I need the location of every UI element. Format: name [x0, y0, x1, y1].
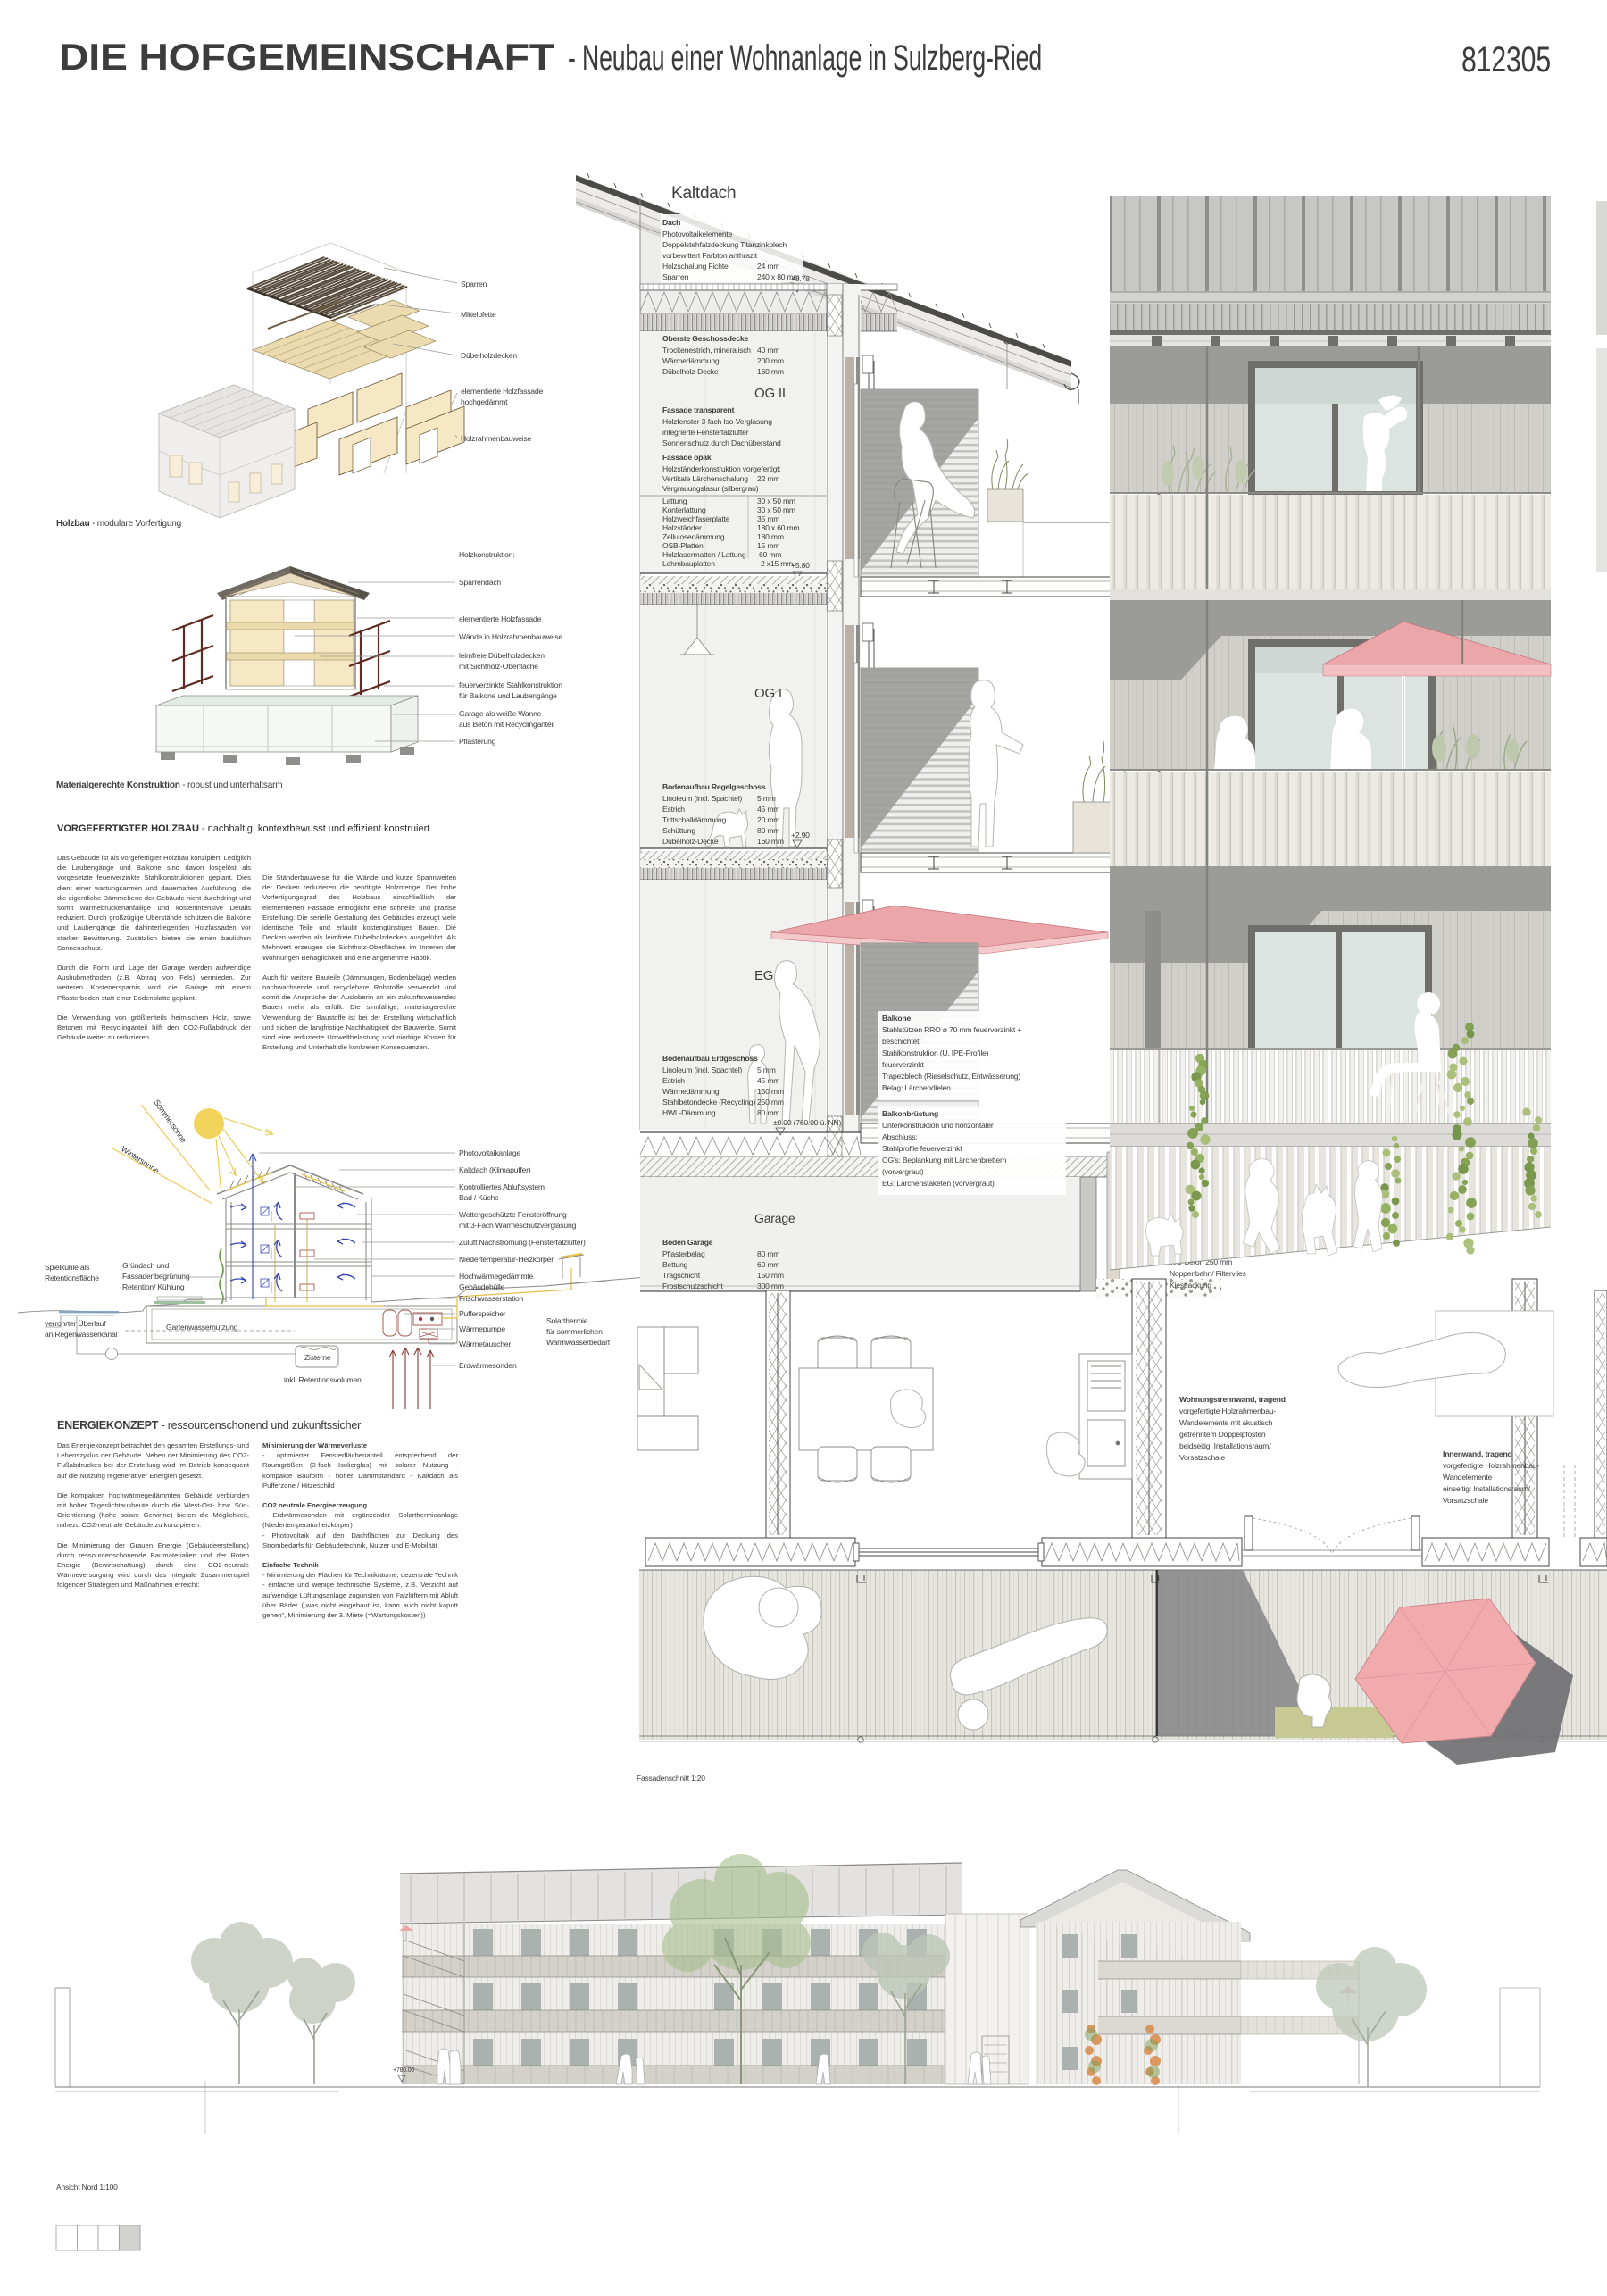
svg-text:Materialgerechte Konstruktion: Materialgerechte Konstruktion - robust u…: [56, 781, 282, 790]
svg-text:ENERGIEKONZEPT - ressourcensch: ENERGIEKONZEPT - ressourcenschonend und …: [57, 1419, 361, 1432]
svg-text:Trittschalldämmung: Trittschalldämmung: [662, 815, 726, 824]
svg-text:Retention/ Kühlung: Retention/ Kühlung: [122, 1282, 185, 1291]
svg-text:beidseitig: Installationsraum/: beidseitig: Installationsraum/: [1179, 1441, 1271, 1450]
svg-text:Schüttung: Schüttung: [662, 826, 695, 835]
svg-text:Pflasterung: Pflasterung: [459, 737, 496, 746]
svg-text:OG I: OG I: [754, 686, 782, 701]
svg-text:aus Beton mit Recyclinganteil: aus Beton mit Recyclinganteil: [459, 720, 554, 729]
svg-text:elementierte Holzfassade: elementierte Holzfassade: [461, 387, 544, 396]
svg-text:Zuluft Nachströmung (Fensterfa: Zuluft Nachströmung (Fensterfalzlüfter): [459, 1238, 586, 1247]
svg-text:Holzständer: Holzständer: [662, 523, 702, 532]
svg-text:Pflasterbelag: Pflasterbelag: [662, 1249, 705, 1258]
svg-text:45 mm: 45 mm: [757, 805, 779, 814]
svg-text:±0.00 (760.00 ü. NN): ±0.00 (760.00 ü. NN): [773, 1118, 842, 1127]
svg-text:150 mm: 150 mm: [757, 1087, 784, 1096]
svg-text:2 x15 mm: 2 x15 mm: [761, 559, 793, 568]
svg-text:160 mm: 160 mm: [757, 837, 784, 846]
svg-text:Wettergeschützte Fensteröffnun: Wettergeschützte Fensteröffnung: [459, 1210, 567, 1219]
svg-text:Oberste Geschossdecke: Oberste Geschossdecke: [662, 334, 749, 343]
svg-text:Warmwasserbedarf: Warmwasserbedarf: [546, 1338, 611, 1347]
svg-text:Bodenaufbau Regelgeschoss: Bodenaufbau Regelgeschoss: [662, 782, 766, 791]
svg-text:Vergrauungslasur (silbergrau): Vergrauungslasur (silbergrau): [662, 484, 759, 493]
svg-text:Kiespackung: Kiespackung: [1170, 1281, 1211, 1290]
svg-text:Gebäudehülle: Gebäudehülle: [459, 1282, 505, 1291]
svg-text:Gartenwassernutzung: Gartenwassernutzung: [166, 1323, 238, 1332]
svg-text:OG II: OG II: [754, 386, 786, 401]
svg-text:Niedertemperatur-Heizkörper: Niedertemperatur-Heizkörper: [459, 1255, 554, 1264]
svg-text:Fassade opak: Fassade opak: [662, 453, 712, 462]
svg-text:Holzfasermatten / Lattung: Holzfasermatten / Lattung: [662, 550, 746, 559]
svg-text:Holzbau - modulare Vorfertigun: Holzbau - modulare Vorfertigung: [56, 519, 181, 529]
svg-text:Holzrahmenbauweise: Holzrahmenbauweise: [461, 434, 531, 443]
svg-text:Fassadenbegrünung: Fassadenbegrünung: [122, 1272, 190, 1281]
svg-text:Kaltdach (Klimapuffer): Kaltdach (Klimapuffer): [459, 1165, 531, 1174]
svg-text:DIE HOFGEMEINSCHAFT: DIE HOFGEMEINSCHAFT: [59, 36, 555, 78]
svg-text:elementierte Holzfassade: elementierte Holzfassade: [459, 614, 542, 623]
svg-text:45 mm: 45 mm: [757, 1076, 779, 1085]
svg-text:Wärmedämmung: Wärmedämmung: [662, 356, 720, 365]
svg-text:Bad / Küche: Bad / Küche: [459, 1193, 499, 1202]
svg-text:30 x 50 mm: 30 x 50 mm: [757, 505, 795, 514]
svg-text:Tragschicht: Tragschicht: [662, 1271, 701, 1280]
svg-text:Stahlprofile feuerverzinkt: Stahlprofile feuerverzinkt: [882, 1144, 962, 1153]
svg-text:Balkone: Balkone: [882, 1014, 911, 1023]
svg-text:Wohnungstrennwand, tragend: Wohnungstrennwand, tragend: [1179, 1395, 1286, 1404]
svg-text:24 mm: 24 mm: [757, 262, 779, 271]
svg-text:Wandelemente: Wandelemente: [1443, 1473, 1493, 1482]
svg-text:mit 3-Fach Wärmeschutzverglasu: mit 3-Fach Wärmeschutzverglasung: [459, 1221, 577, 1230]
svg-text:inkl. Retentionsvolumen: inkl. Retentionsvolumen: [284, 1375, 362, 1384]
svg-text:150 mm: 150 mm: [757, 1271, 784, 1280]
svg-text:80 mm: 80 mm: [757, 1249, 779, 1258]
svg-text:OG's: Beplankung mit Lärchenbr: OG's: Beplankung mit Lärchenbrettern: [882, 1156, 1007, 1165]
svg-text:180 x 60 mm: 180 x 60 mm: [757, 523, 800, 532]
svg-text:60 mm: 60 mm: [757, 1260, 779, 1269]
svg-text:leimfreie Dübelholzdecken: leimfreie Dübelholzdecken: [459, 651, 545, 660]
svg-text:5 mm: 5 mm: [757, 1065, 776, 1074]
svg-text:feuerverzinkt: feuerverzinkt: [882, 1060, 924, 1069]
svg-text:Erdwärmesonden: Erdwärmesonden: [459, 1361, 517, 1370]
svg-text:80 mm: 80 mm: [757, 826, 779, 835]
svg-text:für Balkone und Laubengänge: für Balkone und Laubengänge: [459, 691, 557, 700]
svg-text:22 mm: 22 mm: [757, 474, 779, 483]
svg-text:Fassade transparent: Fassade transparent: [662, 405, 735, 414]
svg-text:Estrich: Estrich: [662, 1076, 685, 1085]
svg-text:integrierte Fensterfalzlüfter: integrierte Fensterfalzlüfter: [662, 428, 749, 437]
svg-text:Wärmepumpe: Wärmepumpe: [459, 1324, 505, 1333]
svg-text:Zellulosedämmung: Zellulosedämmung: [662, 532, 725, 541]
svg-text:Gründach und: Gründach und: [122, 1261, 169, 1270]
svg-text:Unterkonstruktion und horizont: Unterkonstruktion und horizontaler: [882, 1121, 994, 1130]
svg-text:- Neubau einer Wohnanlage in S: - Neubau einer Wohnanlage in Sulzberg-Ri…: [568, 38, 1042, 78]
svg-text:Stahlstützen RRO ø 70 mm feuer: Stahlstützen RRO ø 70 mm feuerverzinkt +: [882, 1025, 1021, 1034]
svg-text:Stahlbetondecke (Recycling): Stahlbetondecke (Recycling): [662, 1098, 755, 1106]
svg-text:Dübelholz-Decke: Dübelholz-Decke: [662, 837, 719, 846]
svg-text:(vorvergraut): (vorvergraut): [882, 1167, 924, 1176]
svg-text:Holzkonstruktion:: Holzkonstruktion:: [459, 550, 515, 559]
svg-text:Pufferspeicher: Pufferspeicher: [459, 1309, 506, 1318]
svg-text:812305: 812305: [1461, 40, 1551, 79]
svg-text:40 mm: 40 mm: [757, 346, 779, 355]
svg-text:EG: EG: [754, 968, 773, 983]
svg-text:Holzfenster 3-fach Iso-Verglas: Holzfenster 3-fach Iso-Verglasung: [662, 417, 772, 426]
svg-text:beschichtet: beschichtet: [882, 1037, 920, 1046]
svg-text:feuerverzinkte Stahlkonstrukti: feuerverzinkte Stahlkonstruktion: [459, 680, 562, 689]
svg-text:Holzschalung Fichte: Holzschalung Fichte: [662, 262, 729, 271]
svg-text:30 x 50 mm: 30 x 50 mm: [757, 497, 795, 505]
svg-text:Wände in Holzrahmenbauweise: Wände in Holzrahmenbauweise: [459, 632, 562, 641]
svg-text:Lehmbauplatten: Lehmbauplatten: [662, 559, 715, 568]
svg-text:Photovoltaikelemente: Photovoltaikelemente: [662, 230, 733, 238]
svg-text:60 mm: 60 mm: [759, 550, 781, 559]
svg-text:Holzständerkonstruktion vorgef: Holzständerkonstruktion vorgefertigt:: [662, 464, 781, 473]
svg-text:15 mm: 15 mm: [757, 541, 779, 550]
svg-text:20 mm: 20 mm: [757, 815, 779, 824]
svg-text:200 mm: 200 mm: [757, 356, 784, 365]
svg-text:Wärmetauscher: Wärmetauscher: [459, 1340, 511, 1348]
svg-text:Kaltdach: Kaltdach: [671, 184, 736, 203]
svg-text:an Regenwasserkanal: an Regenwasserkanal: [45, 1330, 118, 1339]
svg-text:Doppelstehfalzdeckung Titanzin: Doppelstehfalzdeckung Titanzinkblech: [662, 240, 787, 249]
svg-text:einseitig: Installationsraum/: einseitig: Installationsraum/: [1443, 1484, 1531, 1493]
svg-text:Garage: Garage: [754, 1211, 795, 1225]
svg-text:Dach: Dach: [662, 218, 680, 227]
svg-text:300 mm: 300 mm: [757, 1282, 784, 1290]
svg-text:Wärmedämmung: Wärmedämmung: [662, 1087, 720, 1096]
svg-text:Linoleum (incl. Spachtel): Linoleum (incl. Spachtel): [662, 794, 742, 803]
svg-text:Dübelholzdecken: Dübelholzdecken: [461, 351, 517, 360]
svg-text:Estrich: Estrich: [662, 805, 685, 814]
svg-text:Lattung: Lattung: [662, 497, 687, 505]
svg-text:Belag: Lärchendielen: Belag: Lärchendielen: [882, 1083, 951, 1092]
svg-text:Photovoltaikanlage: Photovoltaikanlage: [459, 1148, 520, 1157]
svg-text:Garage als weiße Wanne: Garage als weiße Wanne: [459, 709, 542, 718]
svg-text:Sparren: Sparren: [662, 272, 689, 281]
svg-text:Mittelpfette: Mittelpfette: [461, 310, 496, 319]
svg-text:für sommerlichen: für sommerlichen: [546, 1327, 603, 1336]
svg-text:Fassadenschnitt 1:20: Fassadenschnitt 1:20: [637, 1774, 705, 1783]
svg-text:5 mm: 5 mm: [757, 794, 776, 803]
svg-text:Spielkuhle als: Spielkuhle als: [45, 1263, 89, 1272]
svg-text:Balkonbrüstung: Balkonbrüstung: [882, 1109, 938, 1118]
svg-text:80 mm: 80 mm: [757, 1108, 779, 1117]
svg-text:Sparrendach: Sparrendach: [459, 578, 501, 587]
svg-text:vorbewittert Farbton anthrazit: vorbewittert Farbton anthrazit: [662, 251, 758, 260]
svg-text:Vorsatzschale: Vorsatzschale: [1443, 1496, 1488, 1505]
svg-text:verrohrter Überlauf: verrohrter Überlauf: [45, 1319, 106, 1328]
svg-text:Linoleum (incl. Spachtel): Linoleum (incl. Spachtel): [662, 1065, 742, 1074]
svg-text:EG: Lärchenstaketen (vorverg: EG: Lärchenstaketen (vorvergraut): [882, 1179, 995, 1188]
svg-text:Konterlattung: Konterlattung: [662, 505, 706, 514]
svg-text:Noppenbahn/ Filtervlies: Noppenbahn/ Filtervlies: [1170, 1269, 1246, 1278]
svg-text:vorgefertigte Holzrahmenbau-: vorgefertigte Holzrahmenbau-: [1179, 1407, 1276, 1415]
svg-text:Bettung: Bettung: [662, 1260, 688, 1269]
svg-text:Solarthermie: Solarthermie: [546, 1316, 588, 1325]
svg-text:160 mm: 160 mm: [757, 367, 784, 376]
svg-text:OSB-Platten: OSB-Platten: [662, 541, 704, 550]
svg-text:+5.80: +5.80: [791, 561, 810, 570]
svg-text:Ansicht Nord 1:100: Ansicht Nord 1:100: [56, 2183, 118, 2192]
svg-text:Sonnenschutz durch Dachübersta: Sonnenschutz durch Dachüberstand: [662, 438, 781, 447]
svg-text:Bodenaufbau Erdgeschoss: Bodenaufbau Erdgeschoss: [662, 1054, 758, 1063]
svg-text:Wandelemente mit akustisch: Wandelemente mit akustisch: [1179, 1418, 1273, 1427]
svg-text:Dübelholz-Decke: Dübelholz-Decke: [662, 367, 719, 376]
svg-text:35 mm: 35 mm: [757, 514, 779, 523]
svg-text:Retentionsfläche: Retentionsfläche: [45, 1273, 99, 1282]
svg-text:hochgedämmt: hochgedämmt: [461, 397, 508, 406]
svg-text:+8.78: +8.78: [791, 274, 810, 283]
svg-text:vorgefertigte Holzrahmenbau-: vorgefertigte Holzrahmenbau-: [1443, 1461, 1539, 1470]
svg-text:mit Sichtholz-Oberfläche: mit Sichtholz-Oberfläche: [459, 662, 538, 671]
svg-text:Abschluss:: Abschluss:: [882, 1132, 918, 1141]
svg-text:250 mm: 250 mm: [757, 1098, 784, 1106]
svg-text:Stahlkonstruktion (U, IPE-Prof: Stahlkonstruktion (U, IPE-Profile): [882, 1048, 989, 1057]
svg-text:+2.90: +2.90: [791, 831, 810, 839]
svg-text:Sparren: Sparren: [461, 280, 487, 288]
svg-text:Frischwasserstation: Frischwasserstation: [459, 1294, 524, 1303]
svg-text:getrenntem Doppelpfosten: getrenntem Doppelpfosten: [1179, 1430, 1266, 1439]
svg-text:Innenwand, tragend: Innenwand, tragend: [1443, 1449, 1512, 1458]
svg-text:Frostschutzschicht: Frostschutzschicht: [662, 1282, 723, 1290]
svg-text:Zisterne: Zisterne: [304, 1353, 331, 1362]
svg-text:Holzweichfaserplatte: Holzweichfaserplatte: [662, 514, 730, 523]
svg-text:Vorsatzschale: Vorsatzschale: [1179, 1453, 1225, 1462]
svg-text:Trockenestrich, mineralisch: Trockenestrich, mineralisch: [662, 346, 751, 355]
svg-text:+780.00: +780.00: [393, 2067, 414, 2074]
svg-text:Trapezblech (Rieselschutz, Ent: Trapezblech (Rieselschutz, Entwässerung): [882, 1072, 1020, 1081]
svg-text:Hochwärmegedämmte: Hochwärmegedämmte: [459, 1272, 533, 1281]
svg-text:HWL-Dämmung: HWL-Dämmung: [662, 1108, 716, 1117]
svg-text:180 mm: 180 mm: [757, 532, 784, 541]
svg-text:Vertikale Lärchenschalung: Vertikale Lärchenschalung: [662, 474, 748, 483]
svg-text:Kontrolliertes Abluftsystem: Kontrolliertes Abluftsystem: [459, 1182, 545, 1191]
svg-text:Boden Garage: Boden Garage: [662, 1238, 713, 1247]
